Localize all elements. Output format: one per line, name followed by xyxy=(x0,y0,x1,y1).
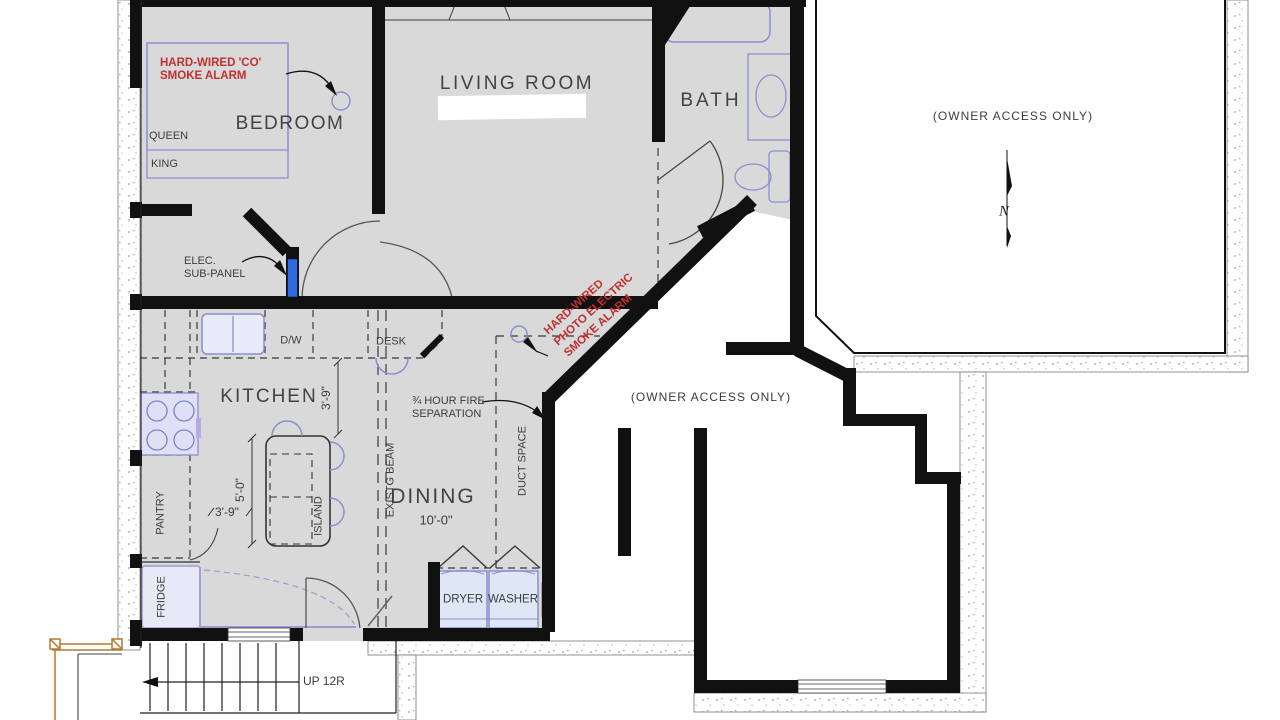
room-label-living: LIVING ROOM xyxy=(440,73,594,95)
stairs xyxy=(140,641,396,713)
king-bed-label: KING xyxy=(151,158,178,171)
washer-label: WASHER xyxy=(488,593,538,606)
owner-access-upper-label: (OWNER ACCESS ONLY) xyxy=(933,110,1093,124)
desk-label: DESK xyxy=(376,336,406,349)
fire-separation-label: ¾ HOUR FIRE SEPARATION xyxy=(412,395,485,420)
deck-inner-lines xyxy=(78,654,122,720)
stairs-label: UP 12R xyxy=(303,675,345,689)
lower-room-window xyxy=(798,680,886,693)
elec-panel xyxy=(288,259,298,297)
island-label: ISLAND xyxy=(313,496,326,536)
north-label: N xyxy=(999,203,1009,220)
dryer-label: DRYER xyxy=(443,593,483,606)
stove xyxy=(141,393,201,455)
kitchen-door-gap xyxy=(303,628,363,641)
room-label-dining: DINING xyxy=(390,485,476,509)
fridge-label: FRIDGE xyxy=(156,576,169,618)
co-alarm-label: HARD-WIRED 'CO' SMOKE ALARM xyxy=(160,57,261,83)
owner-access-lower-label: (OWNER ACCESS ONLY) xyxy=(631,391,791,405)
room-label-kitchen: KITCHEN xyxy=(220,386,317,408)
room-label-bedroom: BEDROOM xyxy=(236,113,345,135)
dim-pantry-width: 3'-9" xyxy=(215,506,239,520)
upper-room-outline xyxy=(816,0,1225,353)
room-label-bath: BATH xyxy=(680,90,741,112)
existing-beam-label: EXISTG BEAM xyxy=(385,443,398,518)
plan-linework xyxy=(0,0,1280,720)
kitchen-sink xyxy=(202,314,264,354)
egress-window xyxy=(228,628,290,641)
dim-kitchen-depth: 3'-9" xyxy=(320,386,334,410)
north-arrow xyxy=(1007,150,1012,248)
duct-space-label: DUCT SPACE xyxy=(517,426,530,496)
queen-bed-label: QUEEN xyxy=(149,130,188,143)
floor-plan: LIVING ROOM BEDROOM BATH KITCHEN DINING … xyxy=(0,0,1280,720)
dining-dimension: 10'-0" xyxy=(419,514,452,529)
dishwasher-label: D/W xyxy=(280,335,301,348)
dim-island-length: 5'-0" xyxy=(234,478,248,502)
deck-posts xyxy=(50,639,122,720)
elec-subpanel-label: ELEC. SUB-PANEL xyxy=(184,255,246,280)
pantry-label: PANTRY xyxy=(155,491,168,535)
redacted-area xyxy=(438,94,586,121)
